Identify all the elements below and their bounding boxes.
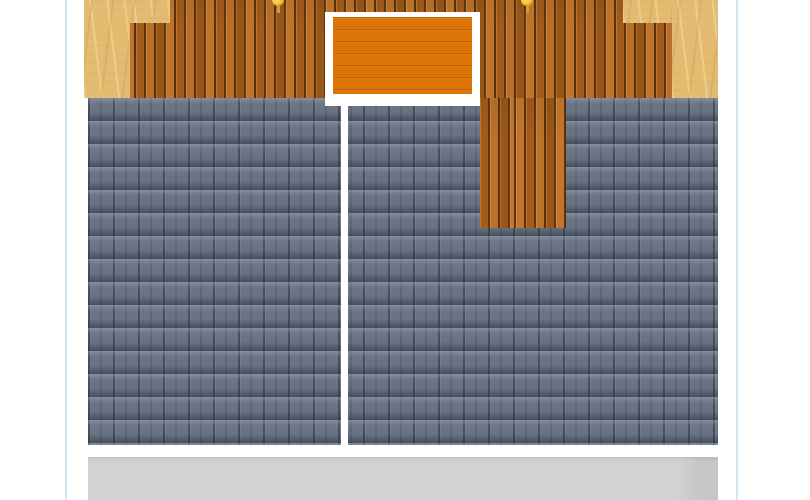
pin-stem xyxy=(526,5,529,13)
concrete-apron xyxy=(88,457,718,500)
pin-stem xyxy=(277,5,280,13)
wood-deck-column xyxy=(480,98,566,228)
roof-tiles xyxy=(88,98,718,445)
roof-seam-line xyxy=(341,100,348,445)
page-guide-line-right xyxy=(736,0,738,500)
page-guide-line-left xyxy=(65,0,67,500)
plan-canvas[interactable] xyxy=(0,0,810,500)
plywood-subfloor-left xyxy=(84,0,130,98)
skylight-panel xyxy=(333,17,472,94)
plywood-subfloor-right xyxy=(672,0,718,98)
skylight-frame[interactable] xyxy=(325,12,480,106)
